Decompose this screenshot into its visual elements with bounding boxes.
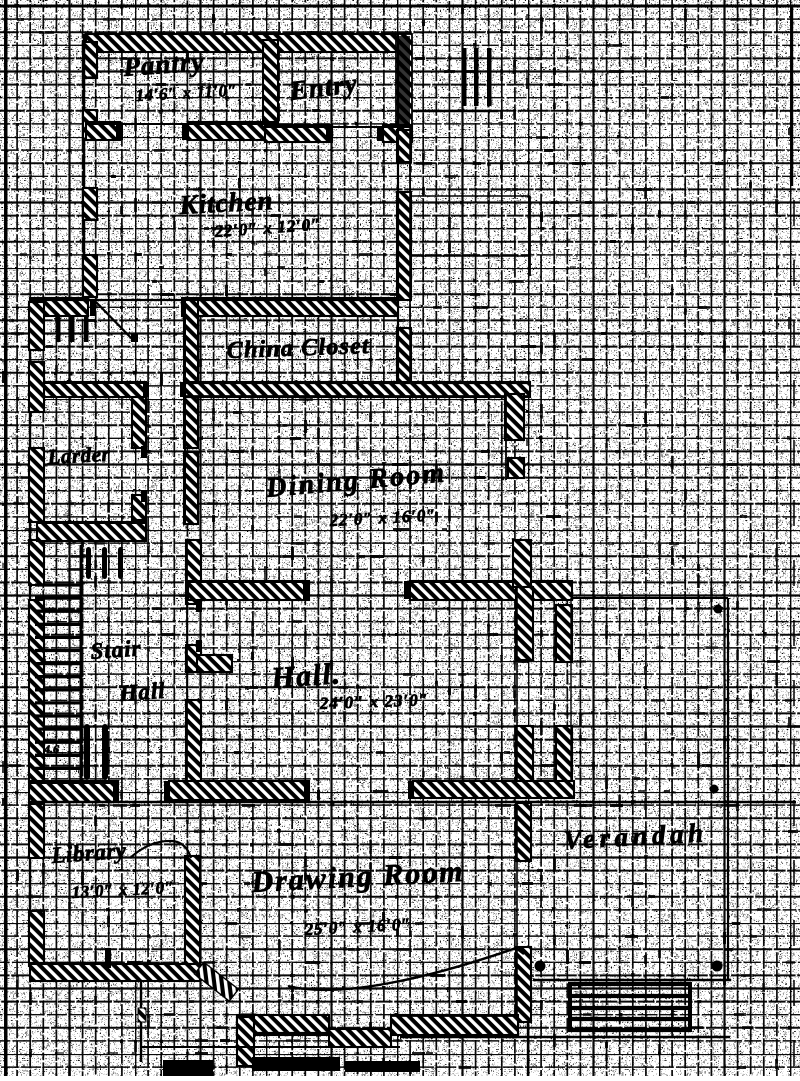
svg-text:Hall: Hall — [118, 678, 167, 706]
svg-text:Pantry: Pantry — [121, 46, 205, 82]
svg-text:Hall.: Hall. — [269, 657, 342, 695]
svg-text:24′0″ x 23′0″: 24′0″ x 23′0″ — [318, 690, 429, 713]
svg-text:Kitchen: Kitchen — [178, 185, 274, 220]
svg-text:Larder: Larder — [46, 442, 111, 469]
svg-text:Library: Library — [50, 838, 128, 868]
svg-text:China Closet: China Closet — [226, 333, 370, 364]
svg-text:Stair: Stair — [90, 635, 143, 664]
svg-text:4.6: 4.6 — [43, 742, 59, 756]
